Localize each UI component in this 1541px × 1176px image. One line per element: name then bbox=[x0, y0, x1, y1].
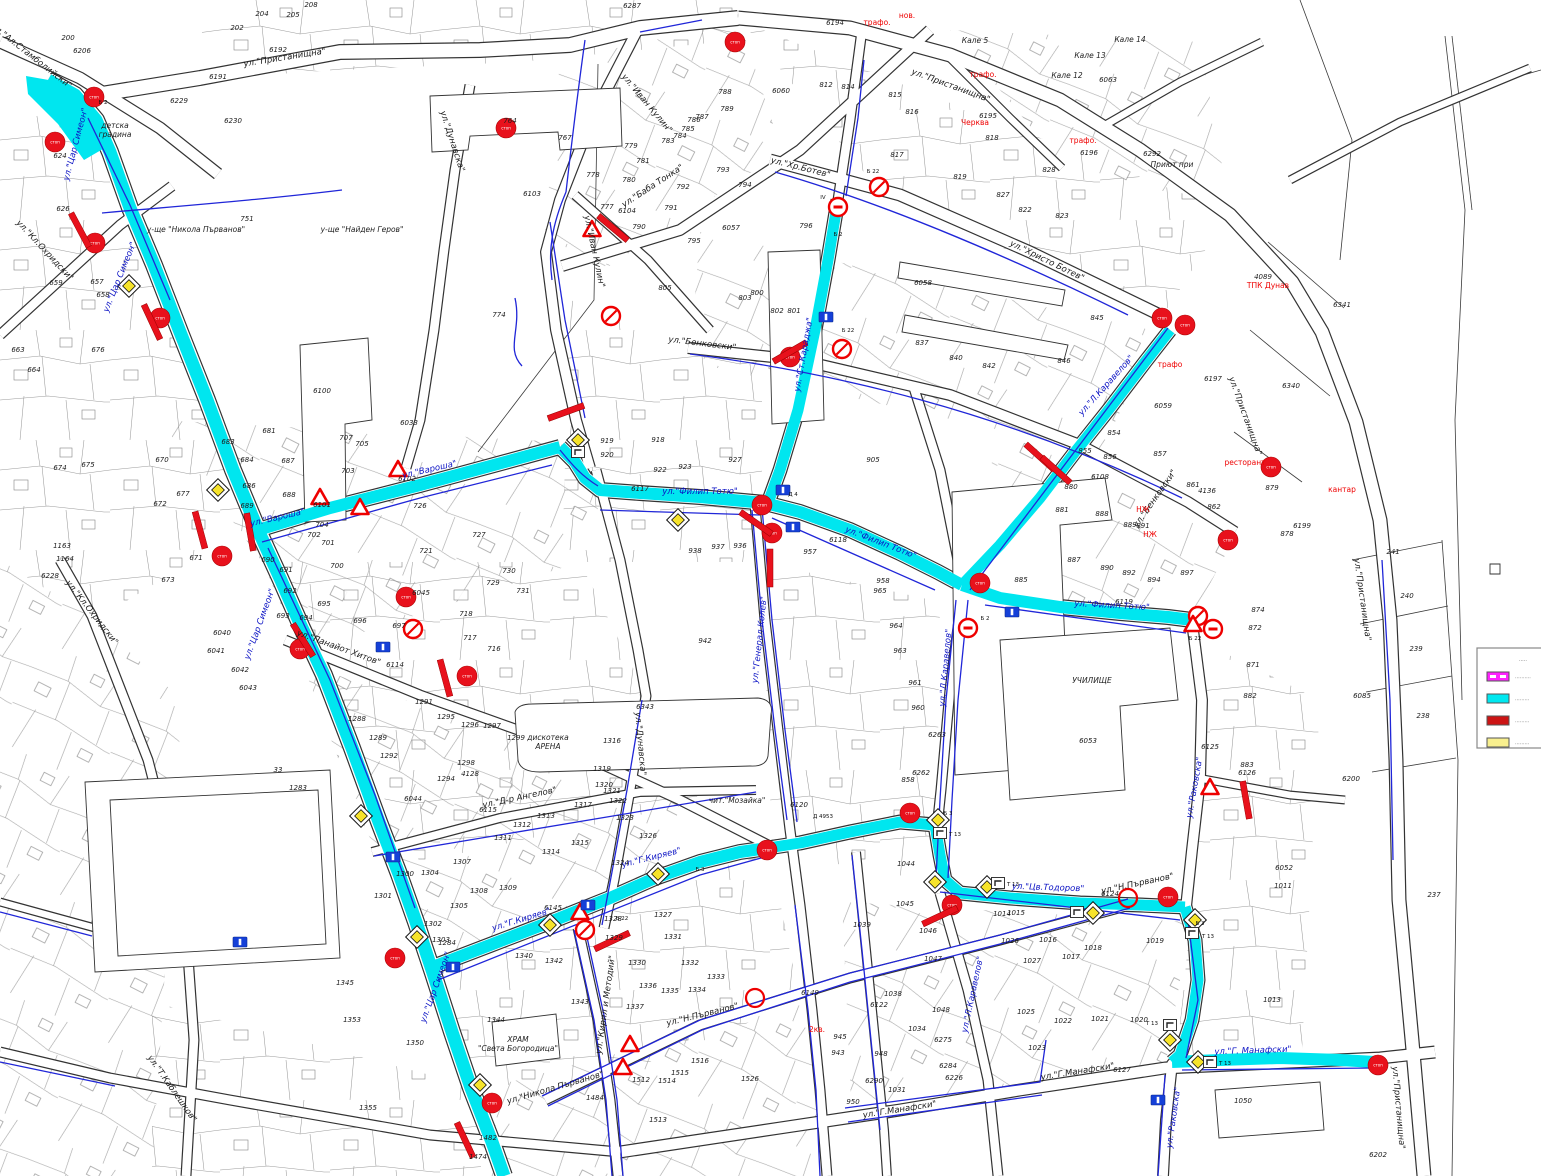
parcel-number: 922 bbox=[653, 466, 667, 474]
parcel-number: 729 bbox=[486, 579, 500, 587]
parcel-number: 857 bbox=[1153, 450, 1167, 458]
parcel-number: 1297 bbox=[483, 722, 501, 730]
parcel-number: 202 bbox=[230, 24, 244, 32]
parcel-number: 697 bbox=[392, 622, 406, 630]
parcel-number: 208 bbox=[304, 1, 318, 9]
parcel-number: 6230 bbox=[224, 117, 242, 125]
one-way-sign bbox=[376, 642, 390, 652]
parcel-number: 817 bbox=[890, 151, 904, 159]
building-outline bbox=[1000, 628, 1178, 800]
parcel-number: 6114 bbox=[386, 661, 404, 669]
street-name: ул."Пристанищна" bbox=[1351, 557, 1373, 642]
parcel-number: 1048 bbox=[932, 1006, 950, 1014]
parcel-number: 672 bbox=[153, 500, 167, 508]
red-annotation: 2кв. bbox=[809, 1025, 825, 1034]
parcel-number: 1164 bbox=[56, 555, 74, 563]
no-entry-sign bbox=[959, 619, 977, 637]
parcel-number: 1316 bbox=[603, 737, 621, 745]
parcel-number: 1474 bbox=[469, 1153, 487, 1161]
parcel-number: 675 bbox=[81, 461, 95, 469]
parcel-number: 696 bbox=[353, 617, 367, 625]
parcel-number: 837 bbox=[915, 339, 929, 347]
parcel-number: 890 bbox=[1100, 564, 1114, 572]
parcel-number: 6149 bbox=[801, 989, 819, 997]
no-stopping-sign bbox=[404, 620, 422, 638]
facility-name: Кале 14 bbox=[1114, 35, 1145, 44]
parcel-number: 878 bbox=[1280, 530, 1294, 538]
one-way-sign bbox=[819, 312, 833, 322]
facility-name: у-ще "Найден Геров" bbox=[320, 225, 404, 234]
parcel-number: 205 bbox=[286, 11, 300, 19]
parcel-number: 1335 bbox=[661, 987, 679, 995]
svg-text:стоп: стоп bbox=[1373, 1062, 1383, 1067]
parcel-number: 241 bbox=[1386, 548, 1399, 556]
one-way-sign bbox=[1151, 1095, 1165, 1105]
svg-text:стоп: стоп bbox=[975, 580, 985, 585]
svg-text:стоп: стоп bbox=[401, 594, 411, 599]
sign-code: Т 13 bbox=[1145, 1021, 1159, 1027]
parcel-number: 1340 bbox=[515, 952, 533, 960]
sign-code: Б 2 bbox=[833, 232, 842, 238]
facility-name: Кале 13 bbox=[1074, 51, 1105, 60]
parcel-number: 1034 bbox=[908, 1025, 926, 1033]
legend-swatch bbox=[1487, 738, 1509, 747]
parcel-number: 6045 bbox=[412, 589, 430, 597]
parcel-number: 919 bbox=[600, 437, 614, 445]
parcel-number: 1011 bbox=[1274, 882, 1292, 890]
parcel-number: 764 bbox=[503, 117, 516, 125]
parcel-number: 1295 bbox=[437, 713, 455, 721]
one-way-sign bbox=[581, 900, 595, 910]
parcel-number: 6063 bbox=[1099, 76, 1117, 84]
parcel-number: 6085 bbox=[1353, 692, 1371, 700]
parcel-number: 6275 bbox=[934, 1036, 952, 1044]
parcel-number: 945 bbox=[833, 1033, 847, 1041]
parcel-number: 1017 bbox=[1062, 953, 1080, 961]
parcel-number: 1021 bbox=[1091, 1015, 1109, 1023]
parcel-number: 693 bbox=[276, 612, 289, 620]
parcel-number: 1019 bbox=[1146, 937, 1164, 945]
parcel-number: 1026 bbox=[1001, 937, 1019, 945]
parcel-number: 670 bbox=[155, 456, 169, 464]
parcel-number: 1311 bbox=[494, 834, 512, 842]
building-outline bbox=[110, 790, 326, 956]
info-sign bbox=[1186, 928, 1199, 939]
street-name: ул."Цар Симеон" bbox=[242, 587, 277, 662]
sign-code: Б 2 bbox=[980, 616, 989, 622]
parcel-number: 673 bbox=[161, 576, 174, 584]
parcel-number: 6058 bbox=[914, 279, 932, 287]
one-way-sign bbox=[386, 852, 400, 862]
parcel-number: 6228 bbox=[41, 572, 59, 580]
svg-text:стоп: стоп bbox=[90, 240, 100, 245]
parcel-number: 816 bbox=[905, 108, 919, 116]
parcel-number: 961 bbox=[908, 679, 921, 687]
parcel-number: 703 bbox=[341, 467, 354, 475]
svg-text:стоп: стоп bbox=[1157, 315, 1167, 320]
stop-sign: стоп bbox=[1368, 1055, 1388, 1075]
parcel-number: 888 bbox=[1095, 510, 1109, 518]
parcel-number: 692 bbox=[283, 587, 297, 595]
parcel-number: 814 bbox=[841, 83, 854, 91]
parcel-number: 1045 bbox=[896, 900, 914, 908]
parcel-number: 705 bbox=[355, 440, 369, 448]
parcel-number: 677 bbox=[176, 490, 190, 498]
parcel-number: 6052 bbox=[1275, 864, 1293, 872]
parcel-number: 1322 bbox=[609, 797, 627, 805]
parcel-number: 1515 bbox=[671, 1069, 689, 1077]
parcel-number: 1308 bbox=[470, 887, 488, 895]
parcel-number: 858 bbox=[901, 776, 915, 784]
parcel-number: 905 bbox=[866, 456, 880, 464]
parcel-number: 803 bbox=[738, 294, 751, 302]
no-stopping-sign bbox=[833, 340, 851, 358]
parcel-number: 6101 bbox=[313, 501, 331, 509]
parcel-number: 690 bbox=[261, 556, 275, 564]
parcel-number: 943 bbox=[831, 1049, 844, 1057]
parcel-number: 702 bbox=[307, 531, 321, 539]
parcel-number: 796 bbox=[799, 222, 813, 230]
svg-text:стоп: стоп bbox=[905, 810, 915, 815]
parcel-number: 795 bbox=[687, 237, 701, 245]
parcel-number: 239 bbox=[1409, 645, 1423, 653]
parcel-number: 751 bbox=[240, 215, 253, 223]
parcel-number: 802 bbox=[770, 307, 784, 315]
facility-name: у-ще "Никола Първанов" bbox=[146, 225, 245, 234]
sign-code: Т 13 bbox=[1218, 1061, 1232, 1067]
parcel-number: 815 bbox=[888, 91, 902, 99]
stop-sign: стоп bbox=[1218, 530, 1238, 550]
parcel-number: 1047 bbox=[924, 955, 942, 963]
parcel-number: 1283 bbox=[289, 784, 307, 792]
no-entry-sign bbox=[829, 198, 847, 216]
parcel-number: 204 bbox=[255, 10, 268, 18]
info-sign bbox=[1071, 907, 1084, 918]
parcel-number: 6199 bbox=[1293, 522, 1311, 530]
parcel-number: 1512 bbox=[632, 1076, 650, 1084]
parcel-number: 936 bbox=[733, 542, 747, 550]
parcel-number: 6100 bbox=[313, 387, 331, 395]
one-way-sign bbox=[233, 937, 247, 947]
red-annotation: Черква bbox=[961, 118, 989, 127]
svg-text:стоп: стоп bbox=[217, 553, 227, 558]
parcel-number: 1355 bbox=[359, 1104, 377, 1112]
parcel-number: 958 bbox=[876, 577, 890, 585]
svg-text:стоп: стоп bbox=[390, 955, 400, 960]
parcel-number: 1312 bbox=[513, 821, 531, 829]
parcel-number: 1313 bbox=[537, 812, 555, 820]
parcel-number: 1336 bbox=[639, 982, 657, 990]
parcel-number: 828 bbox=[1042, 166, 1056, 174]
sign-code: Б 3 bbox=[695, 867, 705, 873]
parcel-number: 1329 bbox=[605, 934, 623, 942]
red-annotation: трафо bbox=[1158, 360, 1183, 369]
sign-code: Б 2 bbox=[98, 100, 107, 106]
legend-label: ········· bbox=[1515, 720, 1530, 726]
no-stopping-sign bbox=[576, 921, 594, 939]
parcel-number: 887 bbox=[1067, 556, 1081, 564]
parcel-number: 1018 bbox=[1084, 944, 1102, 952]
red-annotation: ресторант bbox=[1224, 458, 1266, 467]
svg-text:стоп: стоп bbox=[1223, 537, 1233, 542]
parcel-number: 950 bbox=[846, 1098, 860, 1106]
parcel-number: 840 bbox=[949, 354, 963, 362]
svg-text:стоп: стоп bbox=[762, 847, 772, 852]
parcel-number: 6287 bbox=[623, 2, 641, 10]
street-name: ул."Пристанищна" bbox=[1389, 1065, 1406, 1150]
building-outline bbox=[1490, 564, 1500, 574]
parcel-number: 1163 bbox=[53, 542, 71, 550]
parcel-number: 823 bbox=[1055, 212, 1068, 220]
stop-sign: стоп bbox=[457, 666, 477, 686]
parcel-number: 801 bbox=[787, 307, 800, 315]
parcel-number: 689 bbox=[240, 502, 254, 510]
svg-text:стоп: стоп bbox=[487, 1100, 497, 1105]
parcel-number: 872 bbox=[1248, 624, 1262, 632]
parcel-number: 1321 bbox=[603, 787, 621, 795]
parcel-number: 827 bbox=[996, 191, 1010, 199]
parcel-number: 1330 bbox=[628, 959, 646, 967]
parcel-number: 1307 bbox=[453, 858, 471, 866]
parcel-number: 957 bbox=[803, 548, 817, 556]
parcel-number: 791 bbox=[664, 204, 677, 212]
parcel-number: 6196 bbox=[1080, 149, 1098, 157]
parcel-number: 6284 bbox=[939, 1062, 957, 1070]
parcel-number: 897 bbox=[1180, 569, 1194, 577]
parcel-number: 777 bbox=[600, 203, 614, 211]
parcel-number: 6040 bbox=[213, 629, 231, 637]
parcel-block bbox=[152, 1002, 482, 1176]
parcel-number: 731 bbox=[516, 587, 529, 595]
parcel-number: 721 bbox=[419, 547, 432, 555]
info-sign bbox=[1204, 1057, 1217, 1068]
parcel-number: 1284 bbox=[438, 939, 456, 947]
parcel-number: 794 bbox=[738, 181, 751, 189]
parcel-number: 688 bbox=[282, 491, 296, 499]
no-stopping-sign bbox=[870, 178, 888, 196]
red-annotation: трафо. bbox=[863, 18, 890, 27]
parcel-number: 700 bbox=[330, 562, 344, 570]
parcel-number: 920 bbox=[600, 451, 614, 459]
parcel-number: 879 bbox=[1265, 484, 1279, 492]
svg-text:стоп: стоп bbox=[1163, 894, 1173, 899]
parcel-number: 1288 bbox=[348, 715, 366, 723]
parcel-number: 6053 bbox=[1079, 737, 1097, 745]
stop-sign: стоп bbox=[900, 803, 920, 823]
stop-sign: стоп bbox=[757, 840, 777, 860]
building-outline bbox=[1215, 1082, 1324, 1138]
sign-code: Д 4 bbox=[788, 492, 798, 498]
parcel-number: 1315 bbox=[571, 839, 589, 847]
parcel-number: 1294 bbox=[437, 775, 455, 783]
parcel-number: 1514 bbox=[658, 1077, 676, 1085]
parcel-number: 695 bbox=[317, 600, 331, 608]
parcel-number: 707 bbox=[339, 434, 353, 442]
map-viewport[interactable]: стопстопстопстопстопстопстопстопстопстоп… bbox=[0, 0, 1541, 1176]
parcel-number: 6057 bbox=[722, 224, 740, 232]
parcel-number: 885 bbox=[1014, 576, 1028, 584]
parcel-number: 846 bbox=[1057, 357, 1071, 365]
parcel-number: 1044 bbox=[897, 860, 915, 868]
parcel-number: 805 bbox=[658, 284, 672, 292]
stop-sign: стоп bbox=[1158, 887, 1178, 907]
parcel-number: 882 bbox=[1243, 692, 1257, 700]
parcel-number: 1039 bbox=[853, 921, 871, 929]
field-line bbox=[1372, 758, 1456, 772]
parcel-number: 1027 bbox=[1023, 957, 1041, 965]
sign-code: IV bbox=[820, 195, 826, 201]
parcel-number: 938 bbox=[688, 547, 702, 555]
svg-text:стоп: стоп bbox=[50, 139, 60, 144]
red-annotation: ТПК Дунав bbox=[1246, 281, 1289, 290]
sign-code: Б 22 bbox=[616, 916, 629, 922]
parcel-number: 785 bbox=[681, 125, 695, 133]
stop-sign: стоп bbox=[725, 32, 745, 52]
red-annotation: НЖ bbox=[1143, 530, 1157, 539]
legend-label: ·········· bbox=[1515, 676, 1531, 682]
parcel-number: 6118 bbox=[829, 536, 847, 544]
parcel-number: 727 bbox=[472, 531, 486, 539]
parcel-number: 1025 bbox=[1017, 1008, 1035, 1016]
parcel-number: 684 bbox=[240, 456, 253, 464]
parcel-number: 1031 bbox=[888, 1086, 906, 1094]
parcel-number: 4136 bbox=[1198, 487, 1216, 495]
parcel-number: 686 bbox=[242, 482, 256, 490]
parcel-number: 674 bbox=[53, 464, 66, 472]
info-sign bbox=[992, 878, 1005, 889]
sign-code: Б 3 bbox=[1195, 921, 1205, 927]
parcel-number: 676 bbox=[91, 346, 105, 354]
parcel-number: 1350 bbox=[406, 1039, 424, 1047]
parcel-number: 6117 bbox=[631, 485, 649, 493]
field-line bbox=[1445, 36, 1465, 700]
parcel-number: 694 bbox=[299, 614, 312, 622]
parcel-number: 792 bbox=[676, 183, 690, 191]
facility-name: детскаградина bbox=[99, 121, 132, 139]
field-line bbox=[1442, 540, 1458, 1176]
utility-line bbox=[514, 298, 522, 366]
parcel-number: 701 bbox=[321, 539, 334, 547]
parcel-number: 1484 bbox=[586, 1094, 604, 1102]
parcel-number: 1305 bbox=[450, 902, 468, 910]
parcel-number: 871 bbox=[1246, 661, 1259, 669]
parcel-number: 800 bbox=[750, 289, 764, 297]
parcel-number: 6060 bbox=[772, 87, 790, 95]
parcel-number: 1015 bbox=[1007, 909, 1025, 917]
parcel-number: 716 bbox=[487, 645, 501, 653]
parcel-number: 6126 bbox=[1238, 769, 1256, 777]
parcel-number: 1300 bbox=[396, 870, 414, 878]
sign-code: Т 13 bbox=[1201, 934, 1215, 940]
parcel-number: 918 bbox=[651, 436, 665, 444]
parcel-number: 1022 bbox=[1054, 1017, 1072, 1025]
parcel-number: 6108 bbox=[1091, 473, 1109, 481]
parcel-number: 1292 bbox=[380, 752, 398, 760]
parcel-number: 793 bbox=[716, 166, 729, 174]
parcel-number: 683 bbox=[221, 438, 234, 446]
parcel-number: 6340 bbox=[1282, 382, 1300, 390]
parcel-number: 774 bbox=[492, 311, 505, 319]
parcel-number: 790 bbox=[632, 223, 646, 231]
city-map-canvas[interactable]: стопстопстопстопстопстопстопстопстопстоп… bbox=[0, 0, 1541, 1176]
parcel-number: 1334 bbox=[688, 986, 706, 994]
parcel-number: 1298 bbox=[457, 759, 475, 767]
sign-code: Т 13 bbox=[1006, 882, 1020, 888]
parcel-number: 881 bbox=[1055, 506, 1068, 514]
parcel-number: 6033 bbox=[400, 419, 418, 427]
red-annotation: трафо. bbox=[969, 70, 996, 79]
svg-text:стоп: стоп bbox=[730, 39, 740, 44]
stop-sign: стоп bbox=[1175, 315, 1195, 335]
parcel-number: 6263 bbox=[928, 731, 946, 739]
parcel-number: 6206 bbox=[73, 47, 91, 55]
parcel-number: 1516 bbox=[691, 1057, 709, 1065]
parcel-number: 1513 bbox=[649, 1116, 667, 1124]
parcel-number: 1050 bbox=[1234, 1097, 1252, 1105]
parcel-number: 6120 bbox=[790, 801, 808, 809]
parcel-number: 1337 bbox=[626, 1003, 644, 1011]
legend: ········································… bbox=[1477, 648, 1541, 748]
parcel-number: 6226 bbox=[945, 1074, 963, 1082]
legend-header: ····· bbox=[1519, 658, 1527, 664]
parcel-number: 1038 bbox=[884, 990, 902, 998]
parcel-number: 1526 bbox=[741, 1075, 759, 1083]
svg-text:стоп: стоп bbox=[1266, 464, 1276, 469]
parcel-number: 923 bbox=[678, 463, 691, 471]
parcel-number: 1326 bbox=[639, 832, 657, 840]
parcel-number: 942 bbox=[698, 637, 712, 645]
parcel-number: 780 bbox=[622, 176, 636, 184]
parcel-number: 963 bbox=[893, 647, 906, 655]
parcel-number: 691 bbox=[279, 566, 292, 574]
parcel-number: 781 bbox=[636, 157, 649, 165]
no-entry-sign bbox=[1204, 620, 1222, 638]
road-fill bbox=[1290, 68, 1530, 180]
facility-name: Кале 5 bbox=[962, 36, 989, 45]
parcel-number: 818 bbox=[985, 134, 999, 142]
one-way-sign bbox=[1005, 607, 1019, 617]
parcel-number: 1342 bbox=[545, 957, 563, 965]
sign-code: Д 4953 bbox=[813, 814, 834, 820]
parcel-number: 1331 bbox=[664, 933, 682, 941]
parcel-number: 6044 bbox=[404, 795, 422, 803]
parcel-number: 6041 bbox=[207, 647, 225, 655]
parcel-number: 6194 bbox=[826, 19, 844, 27]
parcel-number: 874 bbox=[1251, 606, 1264, 614]
parcel-number: 892 bbox=[1122, 569, 1136, 577]
parcel-number: 6202 bbox=[1369, 1151, 1387, 1159]
parcel-number: 927 bbox=[728, 456, 742, 464]
street-name: ул."Филип Тотю" bbox=[661, 487, 738, 497]
parcel-number: 1343 bbox=[571, 998, 589, 1006]
parcel-number: 4128 bbox=[461, 770, 479, 778]
stop-sign: стоп bbox=[752, 495, 772, 515]
legend-swatch bbox=[1487, 716, 1509, 725]
parcel-number: 845 bbox=[1090, 314, 1104, 322]
parcel-number: 1323 bbox=[616, 814, 634, 822]
parcel-number: 1301 bbox=[374, 892, 392, 900]
parcel-number: 855 bbox=[1078, 447, 1092, 455]
facility-name: чит."Мозайка" bbox=[709, 796, 766, 805]
parcel-number: 1302 bbox=[424, 920, 442, 928]
parcel-number: 767 bbox=[558, 134, 572, 142]
info-sign bbox=[1164, 1020, 1177, 1031]
building-outline bbox=[430, 88, 622, 152]
parcel-number: 6125 bbox=[1201, 743, 1219, 751]
parcel-number: 33 bbox=[274, 766, 283, 774]
legend-swatch bbox=[1487, 694, 1509, 703]
parcel-number: 948 bbox=[874, 1050, 888, 1058]
